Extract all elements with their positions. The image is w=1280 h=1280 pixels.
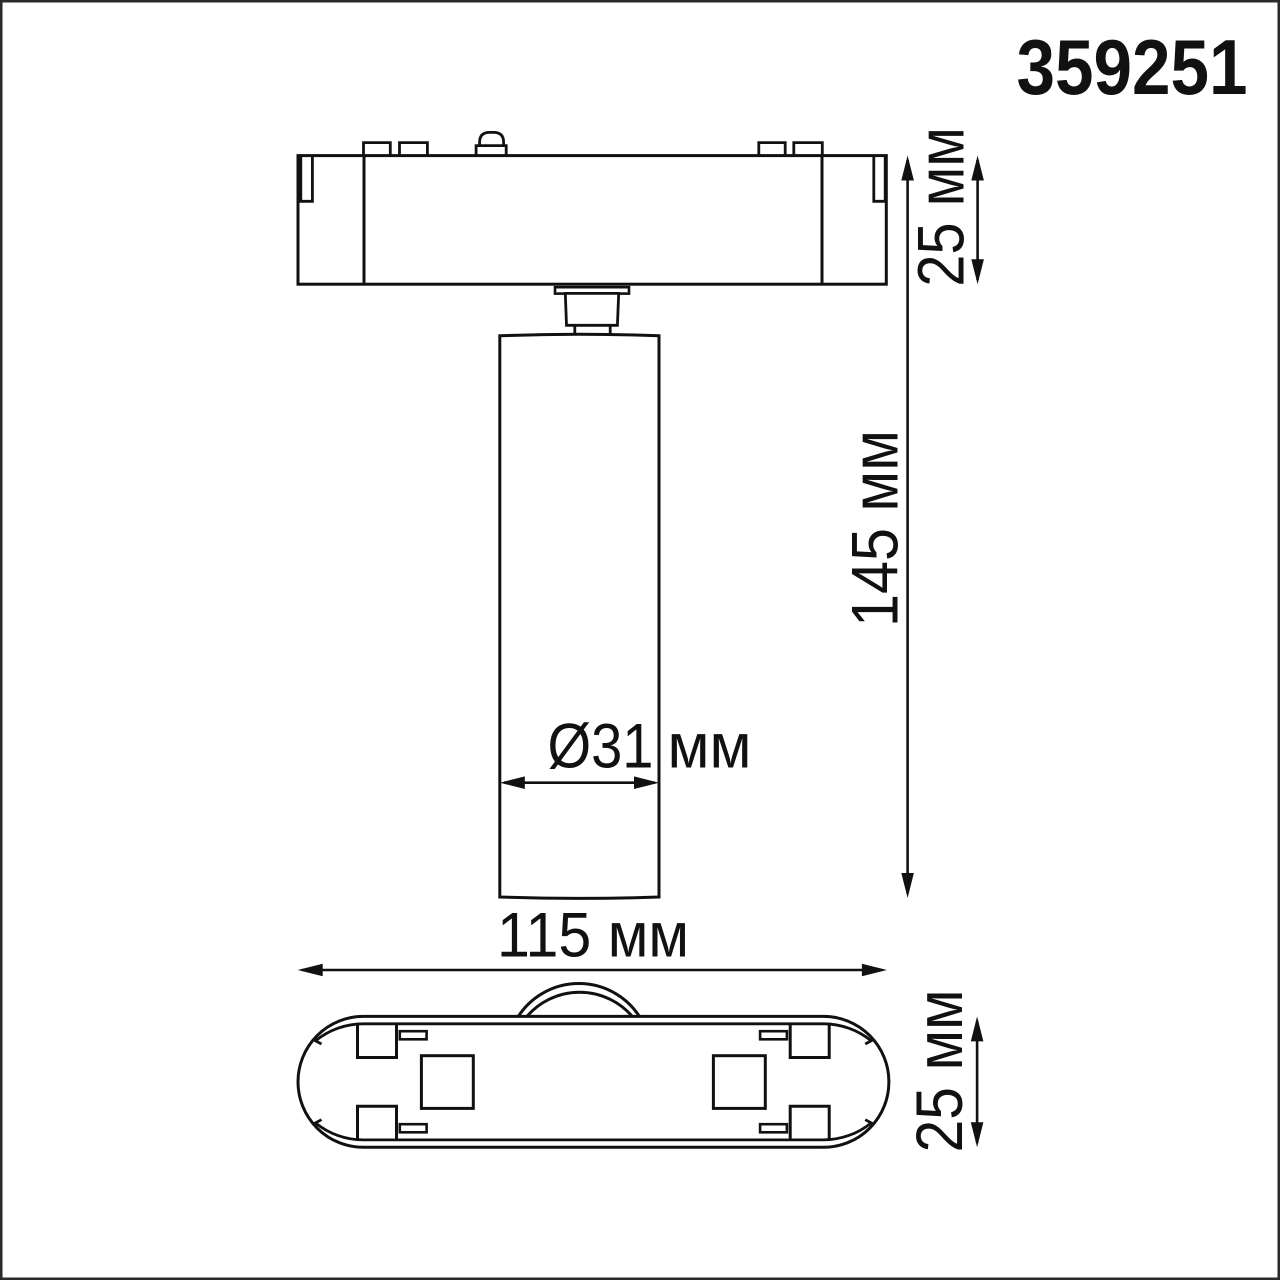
svg-text:25 мм: 25 мм xyxy=(902,990,976,1153)
svg-text:359251: 359251 xyxy=(1017,23,1248,111)
svg-text:25 мм: 25 мм xyxy=(904,127,978,287)
svg-text:Ø31: Ø31 xyxy=(548,711,654,781)
svg-text:145 мм: 145 мм xyxy=(838,430,912,627)
svg-text:мм: мм xyxy=(668,711,752,781)
svg-text:115 мм: 115 мм xyxy=(497,901,689,971)
